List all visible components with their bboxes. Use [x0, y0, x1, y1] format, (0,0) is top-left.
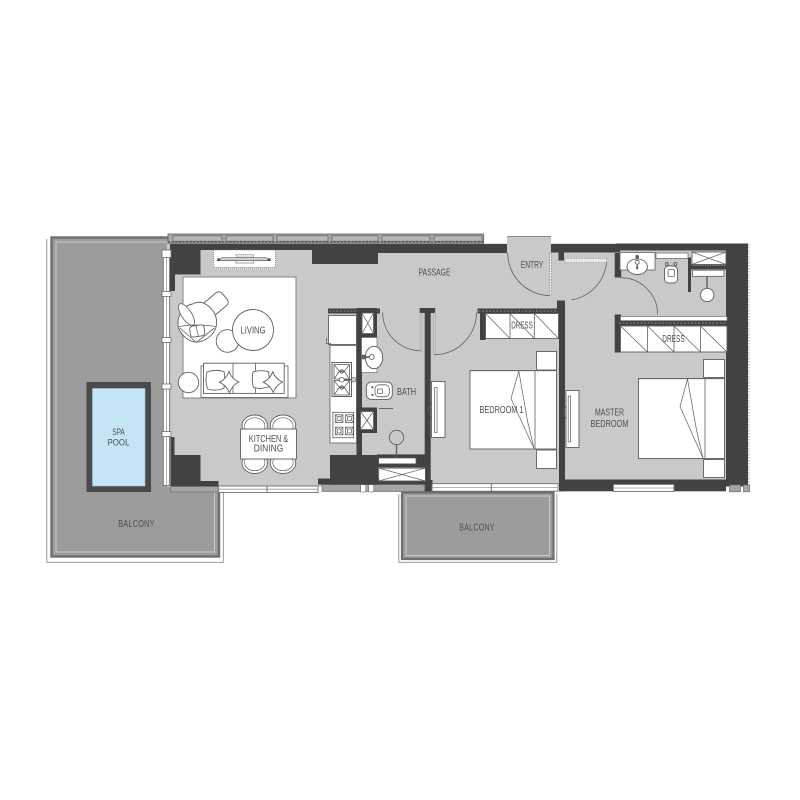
svg-text:MASTER: MASTER — [595, 407, 624, 419]
svg-text:SPA: SPA — [112, 427, 125, 437]
svg-text:BEDROOM: BEDROOM — [591, 418, 629, 430]
svg-text:BATH: BATH — [397, 386, 416, 398]
svg-text:LIVING: LIVING — [241, 326, 266, 337]
svg-text:DRESS: DRESS — [511, 320, 533, 332]
svg-text:BEDROOM 1: BEDROOM 1 — [480, 404, 524, 416]
svg-text:DRESS: DRESS — [662, 333, 685, 345]
svg-text:BALCONY: BALCONY — [459, 522, 495, 534]
svg-text:PASSAGE: PASSAGE — [419, 267, 451, 279]
svg-text:BALCONY: BALCONY — [118, 518, 155, 530]
svg-text:DINING: DINING — [254, 443, 284, 455]
svg-text:ENTRY: ENTRY — [521, 259, 544, 271]
svg-text:POOL: POOL — [108, 438, 130, 448]
